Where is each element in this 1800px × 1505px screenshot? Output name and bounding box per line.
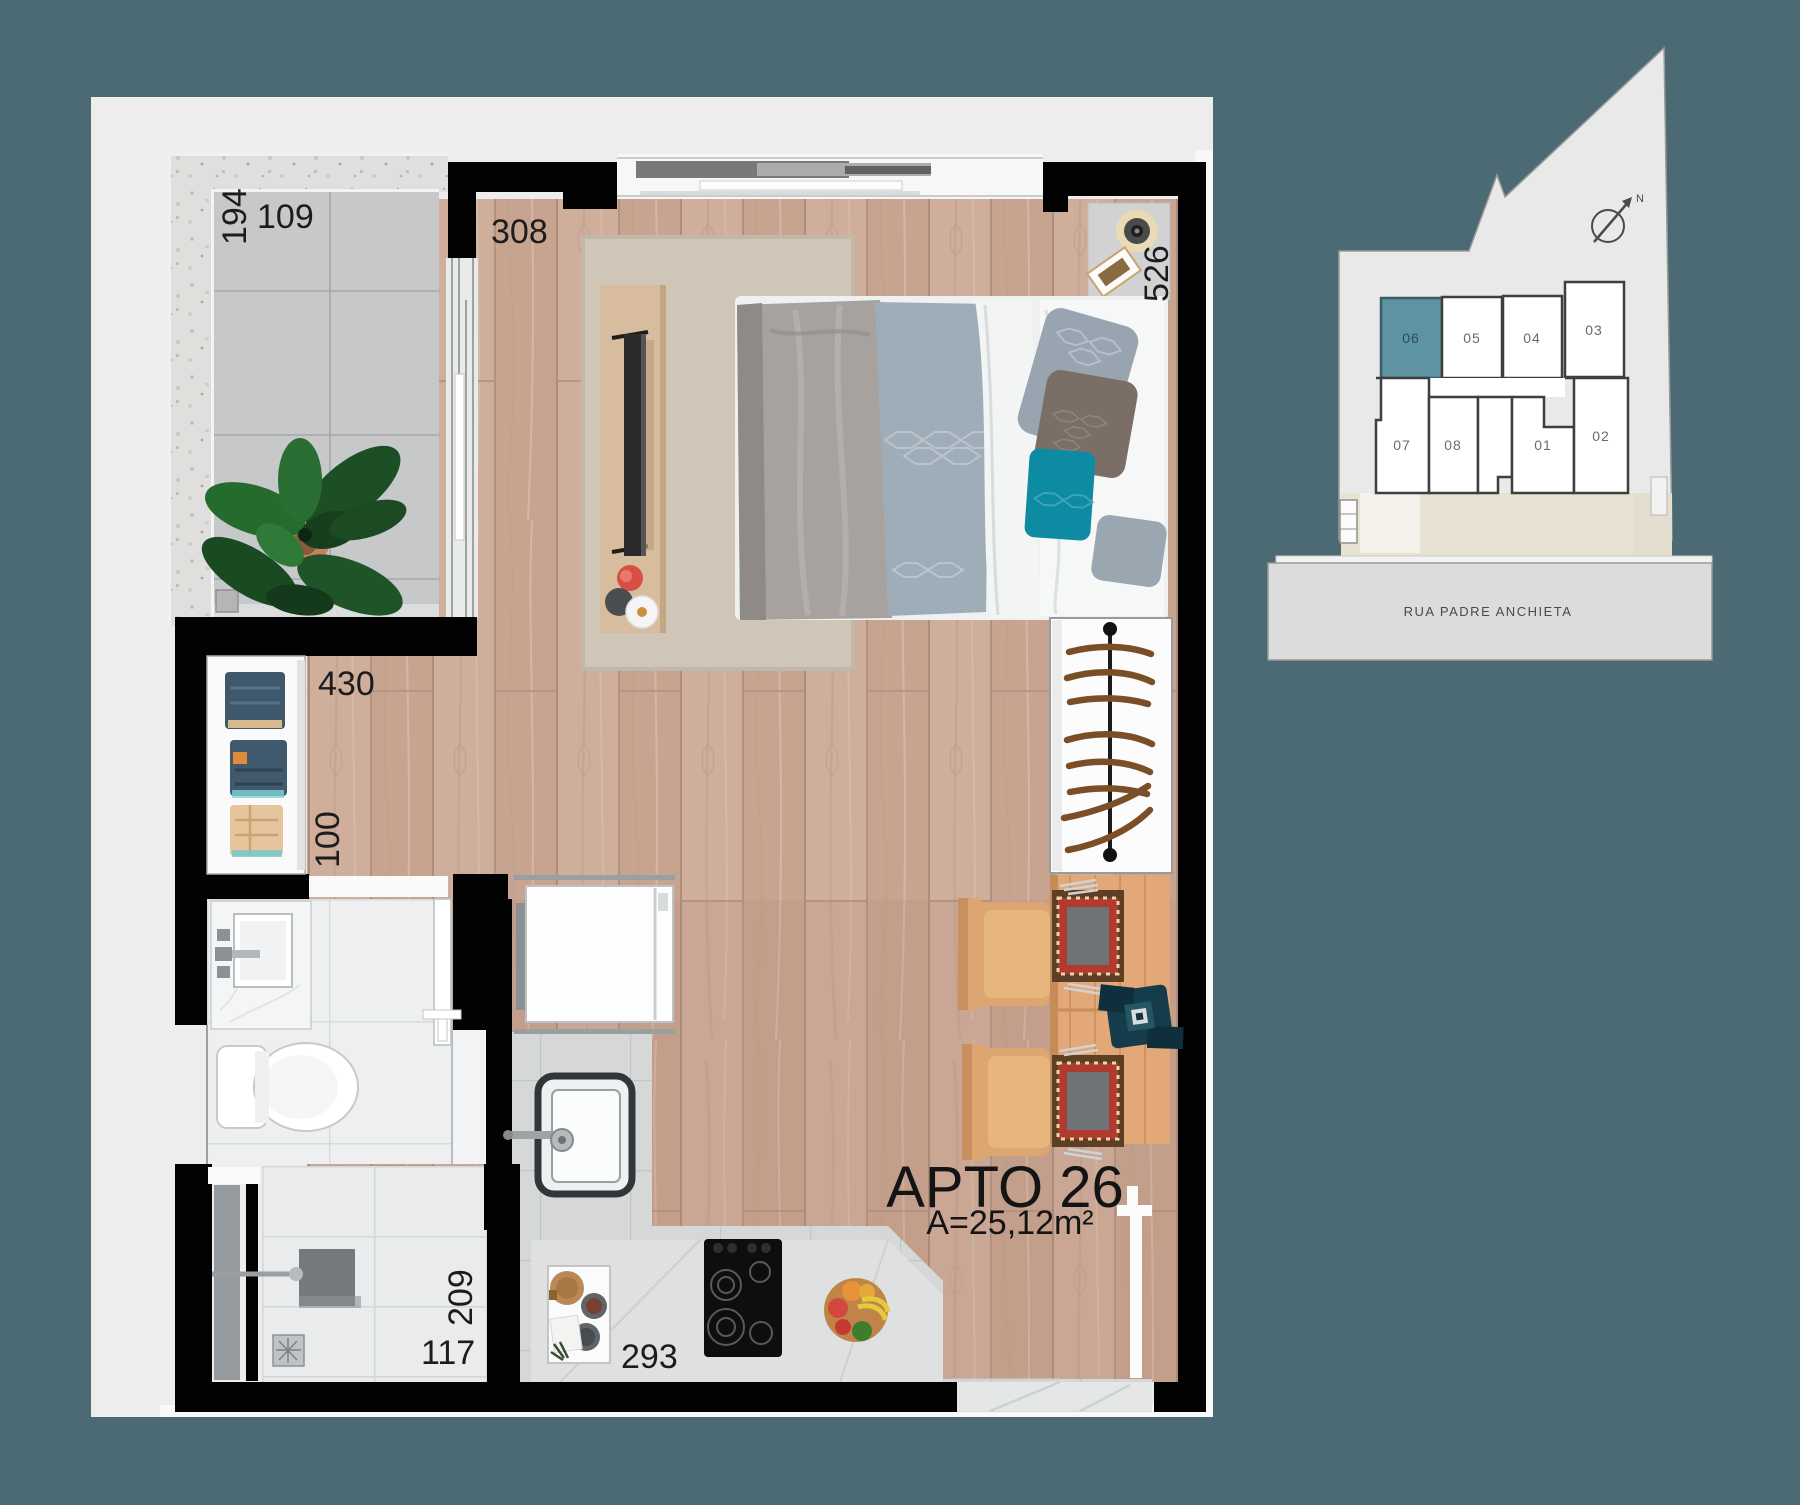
svg-text:03: 03 bbox=[1585, 322, 1603, 338]
svg-text:526: 526 bbox=[1138, 245, 1176, 302]
svg-text:A=25,12m²: A=25,12m² bbox=[926, 1204, 1093, 1242]
svg-text:RUA PADRE ANCHIETA: RUA PADRE ANCHIETA bbox=[1404, 604, 1573, 619]
svg-text:01: 01 bbox=[1534, 437, 1552, 453]
svg-text:04: 04 bbox=[1523, 330, 1541, 346]
svg-text:293: 293 bbox=[621, 1338, 678, 1376]
svg-text:430: 430 bbox=[318, 665, 375, 703]
svg-text:02: 02 bbox=[1592, 428, 1610, 444]
svg-text:194: 194 bbox=[216, 188, 254, 245]
svg-text:05: 05 bbox=[1463, 330, 1481, 346]
svg-text:308: 308 bbox=[491, 213, 548, 251]
svg-text:209: 209 bbox=[442, 1269, 480, 1326]
svg-text:07: 07 bbox=[1393, 437, 1411, 453]
svg-text:109: 109 bbox=[257, 198, 314, 236]
svg-text:06: 06 bbox=[1402, 330, 1420, 346]
svg-text:08: 08 bbox=[1444, 437, 1462, 453]
svg-text:100: 100 bbox=[309, 811, 347, 868]
svg-text:N: N bbox=[1636, 193, 1644, 205]
svg-text:117: 117 bbox=[421, 1334, 475, 1372]
